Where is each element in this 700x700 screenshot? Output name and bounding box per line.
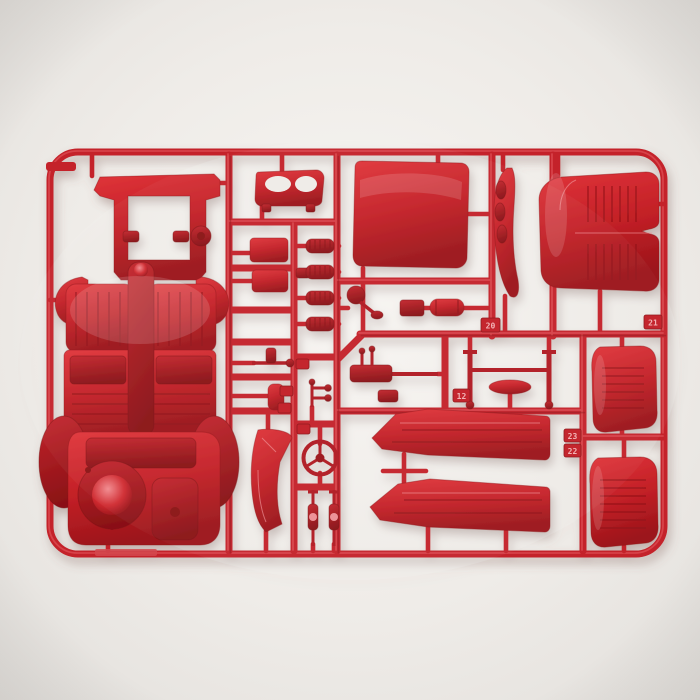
photo-stage: 20 21 12 23 22 xyxy=(0,0,700,700)
photo-vignette xyxy=(0,0,700,700)
sprue-photo: 20 21 12 23 22 xyxy=(0,0,700,700)
